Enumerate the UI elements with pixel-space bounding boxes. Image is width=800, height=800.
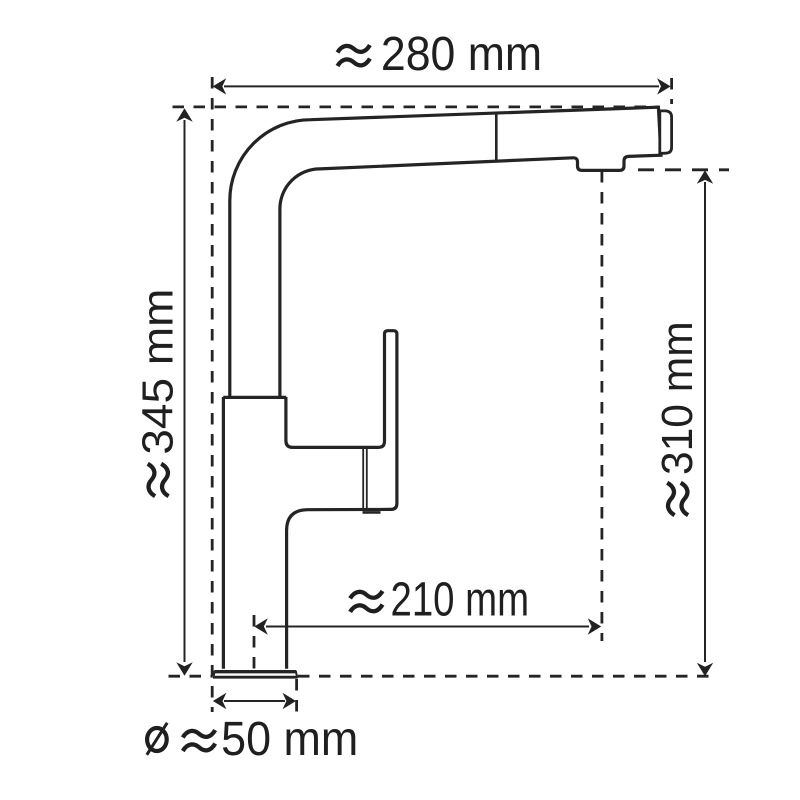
svg-text:280 mm: 280 mm — [381, 26, 542, 80]
svg-text:310 mm: 310 mm — [653, 321, 702, 475]
svg-text:50 mm: 50 mm — [221, 711, 358, 765]
svg-text:345 mm: 345 mm — [132, 289, 182, 455]
svg-text:210 mm: 210 mm — [390, 574, 529, 627]
